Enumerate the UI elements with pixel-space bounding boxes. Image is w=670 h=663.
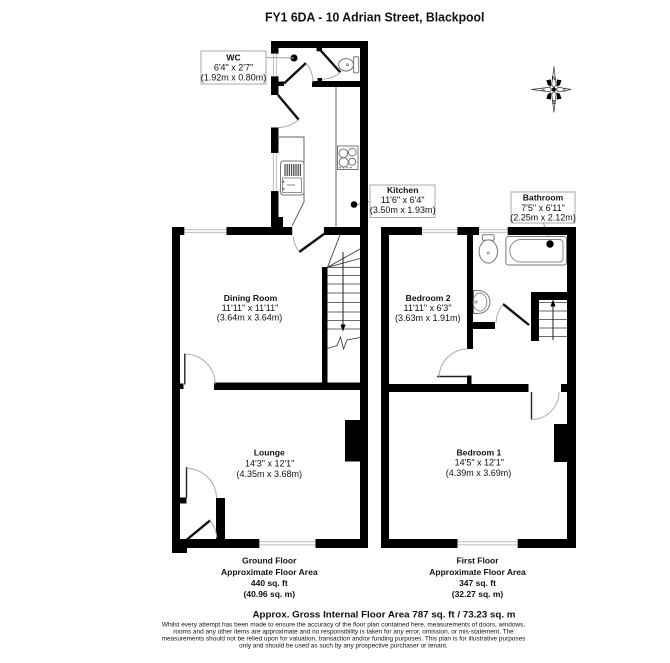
svg-text:(4.35m x 3.68m): (4.35m x 3.68m) [237, 469, 303, 479]
svg-text:Bedroom 2: Bedroom 2 [406, 293, 451, 303]
svg-text:Bathroom: Bathroom [523, 192, 564, 202]
svg-text:N: N [552, 76, 556, 82]
svg-text:(2.25m x 2.12m): (2.25m x 2.12m) [510, 213, 576, 223]
svg-text:only and should be used as suc: only and should be used as such by any p… [239, 643, 448, 650]
svg-text:440 sq. ft: 440 sq. ft [251, 578, 288, 588]
svg-text:11'11" x 11'11": 11'11" x 11'11" [222, 303, 279, 313]
svg-text:Lounge: Lounge [254, 448, 285, 458]
svg-text:S: S [552, 100, 556, 106]
svg-text:Dining Room: Dining Room [224, 293, 278, 303]
svg-text:Approximate Floor Area: Approximate Floor Area [429, 567, 526, 577]
svg-text:347 sq. ft: 347 sq. ft [459, 578, 496, 588]
svg-text:14'3" x 12'1": 14'3" x 12'1" [245, 458, 294, 468]
svg-text:(3.63m x 1.91m): (3.63m x 1.91m) [395, 313, 461, 323]
svg-text:WC: WC [226, 53, 240, 63]
svg-text:measurements should not be rel: measurements should not be relied upon f… [162, 636, 526, 643]
svg-text:11'6" x 6'4": 11'6" x 6'4" [381, 195, 425, 205]
svg-text:FY1 6DA - 10 Adrian Street, Bl: FY1 6DA - 10 Adrian Street, Blackpool [265, 11, 484, 25]
svg-text:Kitchen: Kitchen [387, 185, 419, 195]
svg-text:(1.92m x 0.80m): (1.92m x 0.80m) [201, 73, 267, 83]
svg-text:7'5" x 6'11": 7'5" x 6'11" [521, 203, 565, 213]
svg-text:(3.50m x 1.93m): (3.50m x 1.93m) [370, 205, 436, 215]
svg-text:First Floor: First Floor [456, 556, 499, 566]
svg-text:rooms and any other items are: rooms and any other items are approximat… [173, 629, 514, 636]
svg-text:(3.64m x 3.64m): (3.64m x 3.64m) [217, 313, 283, 323]
svg-text:Bedroom 1: Bedroom 1 [456, 447, 501, 457]
svg-text:6'4" x 2'7": 6'4" x 2'7" [214, 63, 253, 73]
svg-text:(4.39m x 3.69m): (4.39m x 3.69m) [446, 468, 512, 478]
svg-text:11'11" x 6'3": 11'11" x 6'3" [403, 303, 451, 313]
svg-text:14'5" x 12'1": 14'5" x 12'1" [455, 458, 504, 468]
svg-text:(32.27 sq. m): (32.27 sq. m) [452, 589, 504, 599]
svg-text:E: E [563, 87, 566, 92]
svg-text:(40.96 sq. m): (40.96 sq. m) [244, 589, 296, 599]
svg-text:Approx. Gross Internal Floor A: Approx. Gross Internal Floor Area 787 sq… [253, 610, 516, 621]
svg-text:Approximate Floor Area: Approximate Floor Area [221, 567, 318, 577]
svg-text:Ground Floor: Ground Floor [242, 556, 297, 566]
svg-text:W: W [541, 87, 545, 92]
